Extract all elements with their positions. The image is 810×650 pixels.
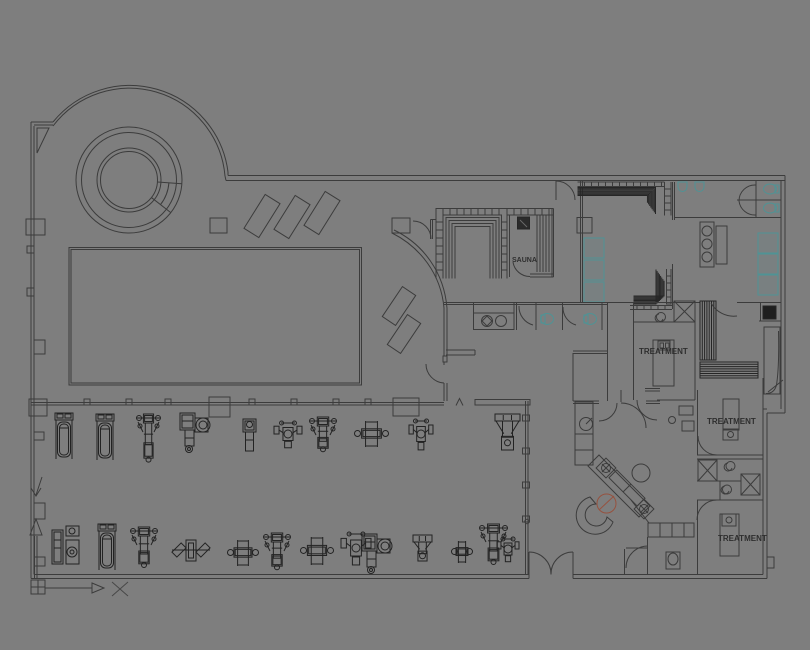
svg-text:SAUNA: SAUNA [512, 257, 537, 264]
svg-text:TREATMENT: TREATMENT [718, 534, 767, 543]
svg-text:TREATMENT: TREATMENT [639, 347, 688, 356]
svg-text:TREATMENT: TREATMENT [707, 417, 756, 426]
